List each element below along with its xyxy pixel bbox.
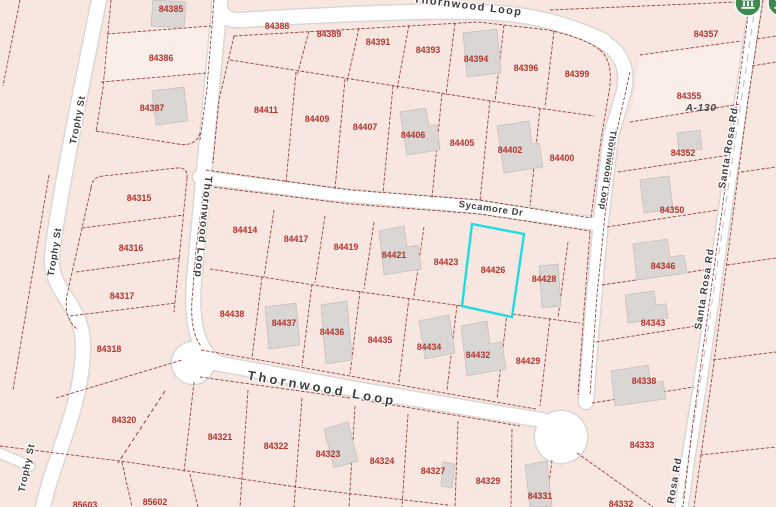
parcel-label-84399: 84399 bbox=[565, 69, 590, 79]
parcel-label-84407: 84407 bbox=[353, 122, 378, 132]
parcel-label-84423: 84423 bbox=[434, 257, 459, 267]
map-canvas[interactable]: 8438584386843878431584316843178431884320… bbox=[0, 0, 776, 507]
parcel-label-84434: 84434 bbox=[417, 342, 442, 352]
parcel-label-84329: 84329 bbox=[476, 476, 501, 486]
parcel-label-84437: 84437 bbox=[272, 318, 297, 328]
road-bulb-right bbox=[535, 411, 587, 463]
building-footprint bbox=[419, 315, 455, 359]
parcel-label-85603: 85603 bbox=[73, 500, 98, 507]
parcel-label-84396: 84396 bbox=[514, 63, 539, 73]
parcel-label-84323: 84323 bbox=[316, 449, 341, 459]
parcel-label-84317: 84317 bbox=[110, 291, 135, 301]
parcel-label-84386: 84386 bbox=[149, 53, 174, 63]
parcel-label-84414: 84414 bbox=[233, 225, 258, 235]
parcel-label-84417: 84417 bbox=[284, 234, 309, 244]
parcel-label-84322: 84322 bbox=[264, 441, 289, 451]
parcel-label-84436: 84436 bbox=[320, 327, 345, 337]
parcel-label-84327: 84327 bbox=[421, 466, 446, 476]
parcel-label-84435: 84435 bbox=[368, 335, 393, 345]
parcel-label-84406: 84406 bbox=[401, 130, 426, 140]
parcel-label-84432: 84432 bbox=[466, 350, 491, 360]
parcel-label-84338: 84338 bbox=[632, 376, 657, 386]
parcel-label-84332: 84332 bbox=[609, 499, 634, 507]
parcel-label-84394: 84394 bbox=[464, 54, 489, 64]
parcel-label-84409: 84409 bbox=[305, 114, 330, 124]
parcel-label-84400: 84400 bbox=[550, 153, 575, 163]
parcel-label-84421: 84421 bbox=[382, 250, 407, 260]
parcel-label-84346: 84346 bbox=[651, 261, 676, 271]
map-viewport[interactable]: 8438584386843878431584316843178431884320… bbox=[0, 0, 776, 507]
parcel-label-84429: 84429 bbox=[516, 356, 541, 366]
building-footprint bbox=[463, 29, 501, 77]
parcel-label-84315: 84315 bbox=[127, 193, 152, 203]
parcel-label-84387: 84387 bbox=[140, 103, 165, 113]
lot-code-label: A-130 bbox=[684, 102, 716, 114]
annotation-labels-layer: A-130 bbox=[684, 102, 716, 114]
parcel-label-84324: 84324 bbox=[370, 456, 395, 466]
parcel-label-84321: 84321 bbox=[208, 432, 233, 442]
parcel-label-84411: 84411 bbox=[254, 105, 278, 115]
parcel-label-84385: 84385 bbox=[159, 4, 184, 14]
parcel-label-84355: 84355 bbox=[677, 91, 702, 101]
parcel-label-84350: 84350 bbox=[660, 205, 685, 215]
parcel-label-84438: 84438 bbox=[220, 309, 245, 319]
parcel-label-84393: 84393 bbox=[416, 45, 441, 55]
parcel-label-84316: 84316 bbox=[119, 243, 144, 253]
building-footprint bbox=[539, 264, 561, 308]
parcel-label-85602: 85602 bbox=[143, 497, 168, 507]
parcel-label-84320: 84320 bbox=[112, 415, 137, 425]
parcel-label-84402: 84402 bbox=[498, 145, 523, 155]
parcel-label-84391: 84391 bbox=[366, 37, 391, 47]
parcel-label-84318: 84318 bbox=[97, 344, 122, 354]
parcel-label-84426: 84426 bbox=[481, 265, 506, 275]
parcel-label-84333: 84333 bbox=[630, 440, 655, 450]
parcel-label-84357: 84357 bbox=[694, 29, 719, 39]
parcel-label-84343: 84343 bbox=[641, 318, 666, 328]
parcel-label-84428: 84428 bbox=[532, 274, 557, 284]
parcel-label-84388: 84388 bbox=[265, 21, 290, 31]
parcel-label-84331: 84331 bbox=[528, 491, 553, 501]
parcel-label-84419: 84419 bbox=[334, 242, 359, 252]
parcel-label-84389: 84389 bbox=[317, 29, 342, 39]
parcel-label-84352: 84352 bbox=[671, 148, 696, 158]
parcel-label-84405: 84405 bbox=[450, 138, 475, 148]
